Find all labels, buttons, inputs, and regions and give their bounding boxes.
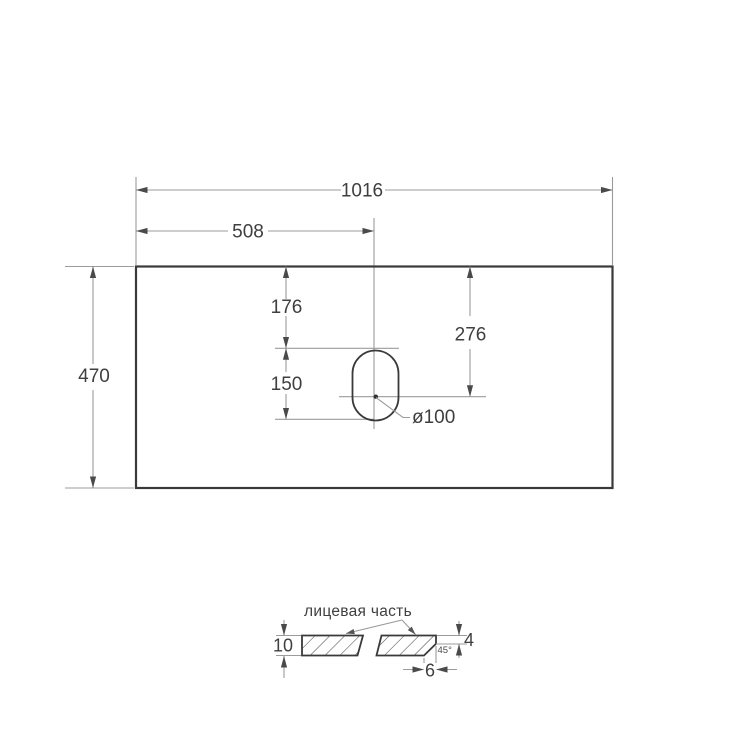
dim-halfwidth-label: 508 [232,222,264,243]
faucet-hole-outline [353,351,399,421]
face-leader-right [402,620,416,635]
section-slab-left [302,636,363,656]
chamfer-angle-label: 45° [438,645,453,656]
countertop-drawing: 1016 508 470 176 150 276 ø100 лицевая ча… [0,0,750,750]
dim-hole-offset-label: 176 [271,297,303,318]
hole-diameter-label: ø100 [412,407,455,428]
thickness-label: 10 [273,636,293,656]
chamfer-depth-label: 6 [425,661,435,681]
face-leader-left [346,620,402,634]
face-side-label: лицевая часть [304,603,412,620]
dim-hole-span-label: 150 [271,374,303,395]
section-slab-right [377,636,437,656]
dim-depth-label: 470 [78,366,110,387]
dim-hole-center-label: 276 [455,325,487,346]
hole-diameter-leader-line [376,398,410,418]
front-edge-height-label: 4 [464,630,474,650]
technical-drawing-page: 1016 508 470 176 150 276 ø100 лицевая ча… [0,0,750,750]
dim-width-label: 1016 [341,181,383,202]
